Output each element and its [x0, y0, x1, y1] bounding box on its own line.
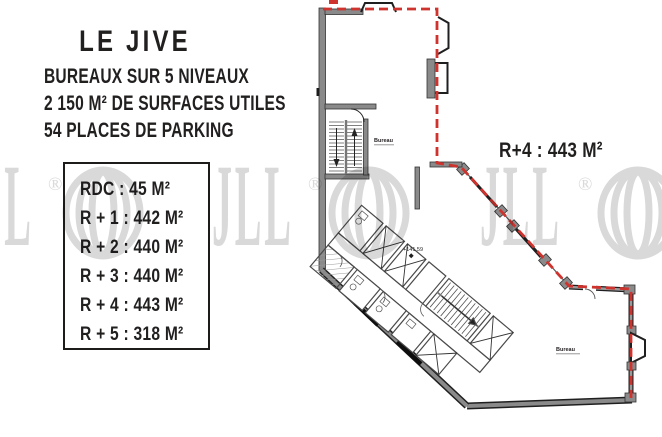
area-row-r5: R + 5 : 318 M² — [80, 320, 182, 349]
room-label-bottom: Bureau — [556, 347, 575, 353]
subtitle-surface: 2 150 M² DE SURFACES UTILES — [44, 90, 226, 117]
area-row-r2: R + 2 : 440 M² — [80, 233, 182, 262]
area-table: RDC : 45 M² R + 1 : 442 M² R + 2 : 440 M… — [63, 162, 210, 350]
area-row-rdc: RDC : 45 M² — [80, 175, 182, 204]
info-panel: LE JIVE BUREAUX SUR 5 NIVEAUX 2 150 M² D… — [12, 26, 258, 144]
area-row-r4: R + 4 : 443 M² — [80, 291, 182, 320]
level-marker-label: +141.59 — [403, 247, 423, 253]
area-row-r1: R + 1 : 442 M² — [80, 204, 182, 233]
area-row-r3: R + 3 : 440 M² — [80, 262, 182, 291]
floor-label: R+4 : 443 M² — [499, 138, 603, 163]
page-title: LE JIVE — [37, 26, 234, 58]
subtitle-levels: BUREAUX SUR 5 NIVEAUX — [44, 63, 226, 90]
room-label-top: Bureau — [374, 138, 393, 144]
service-core — [310, 205, 513, 394]
subtitle-parking: 54 PLACES DE PARKING — [44, 117, 226, 144]
staircase-upper-left — [325, 104, 376, 179]
brochure-page: LE JIVE BUREAUX SUR 5 NIVEAUX 2 150 M² D… — [0, 0, 662, 437]
area-table-rows: RDC : 45 M² R + 1 : 442 M² R + 2 : 440 M… — [65, 164, 208, 349]
